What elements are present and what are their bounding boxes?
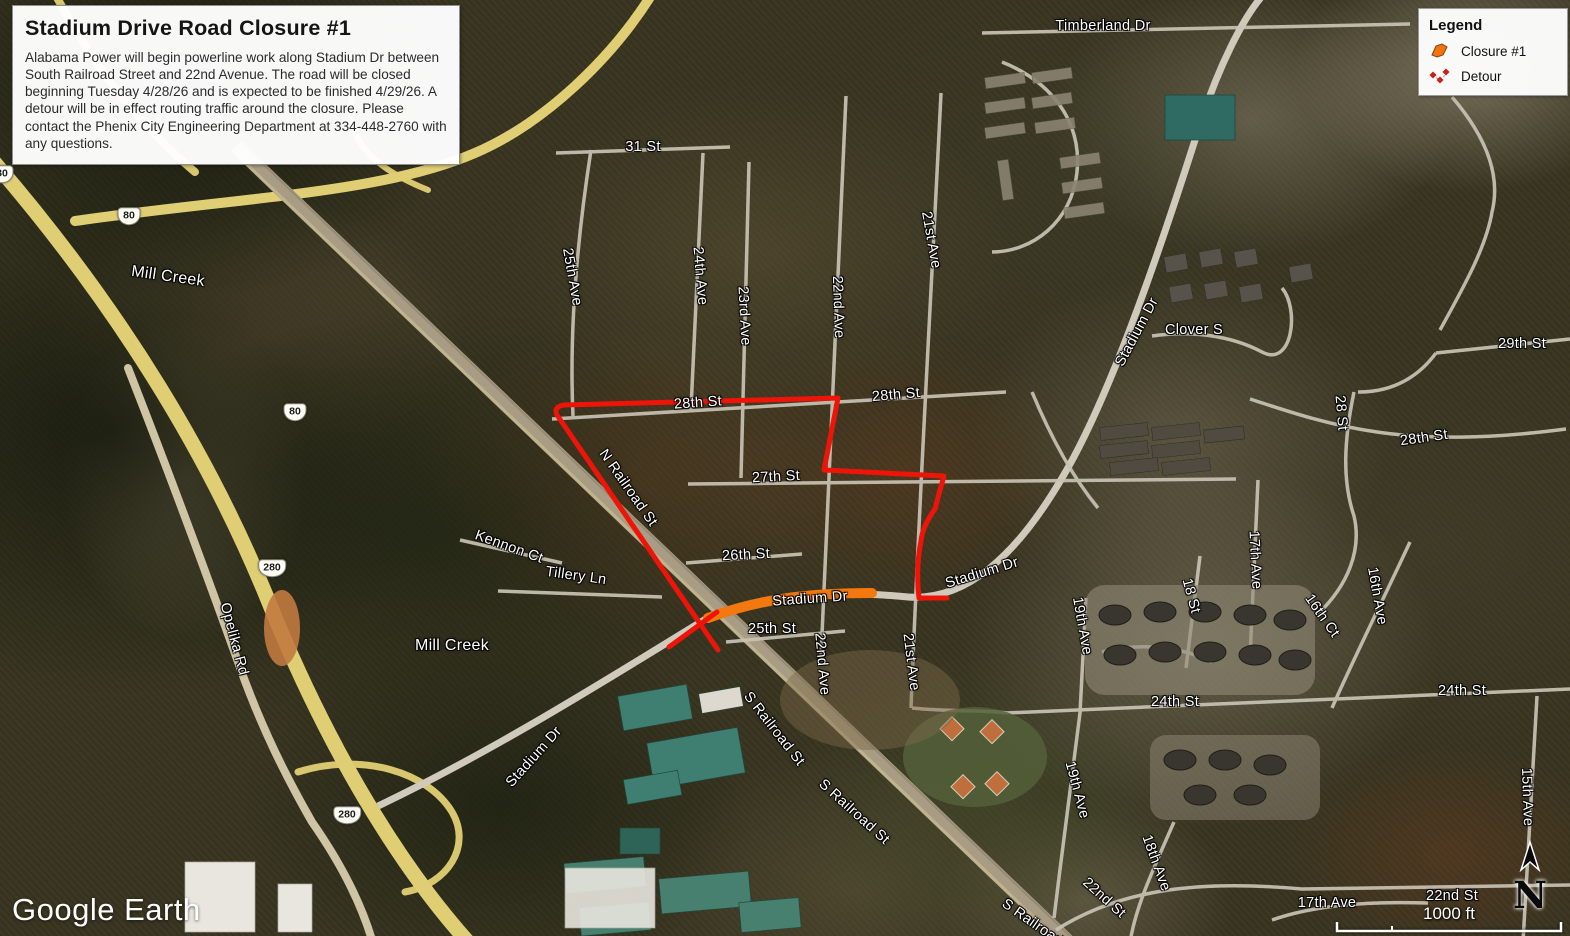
scale-bar-bracket [1334, 908, 1564, 934]
legend-title: Legend [1429, 17, 1557, 34]
detour-route [556, 398, 947, 650]
closure-segment [708, 593, 872, 618]
legend-item-label: Closure #1 [1461, 44, 1526, 59]
north-arrow-icon [1508, 840, 1552, 874]
scale-bar: 1000 ft [1334, 908, 1564, 934]
dirt-patches [264, 590, 960, 750]
legend-item-label: Detour [1461, 69, 1502, 84]
townhome-buildings [1100, 423, 1245, 476]
detour-diamonds-icon [1429, 67, 1451, 85]
clover-houses [1164, 248, 1313, 303]
google-earth-logo: Google Earth [12, 892, 201, 928]
closure-polygon-icon [1429, 42, 1451, 60]
legend: Legend Closure #1 Detour [1418, 8, 1568, 96]
info-box-title: Stadium Drive Road Closure #1 [25, 16, 447, 41]
legend-item-closure: Closure #1 [1429, 42, 1557, 60]
google-earth-map-viewport[interactable]: 31 St25th Ave24th Ave23rd Ave22nd Ave21s… [0, 0, 1570, 936]
road-closure-info-box: Stadium Drive Road Closure #1 Alabama Po… [12, 5, 460, 165]
info-box-body: Alabama Power will begin powerline work … [25, 49, 447, 152]
railroad-corridor [232, 142, 1072, 936]
north-arrow: N [1508, 840, 1552, 912]
commercial-buildings [185, 95, 1235, 932]
legend-item-detour: Detour [1429, 67, 1557, 85]
